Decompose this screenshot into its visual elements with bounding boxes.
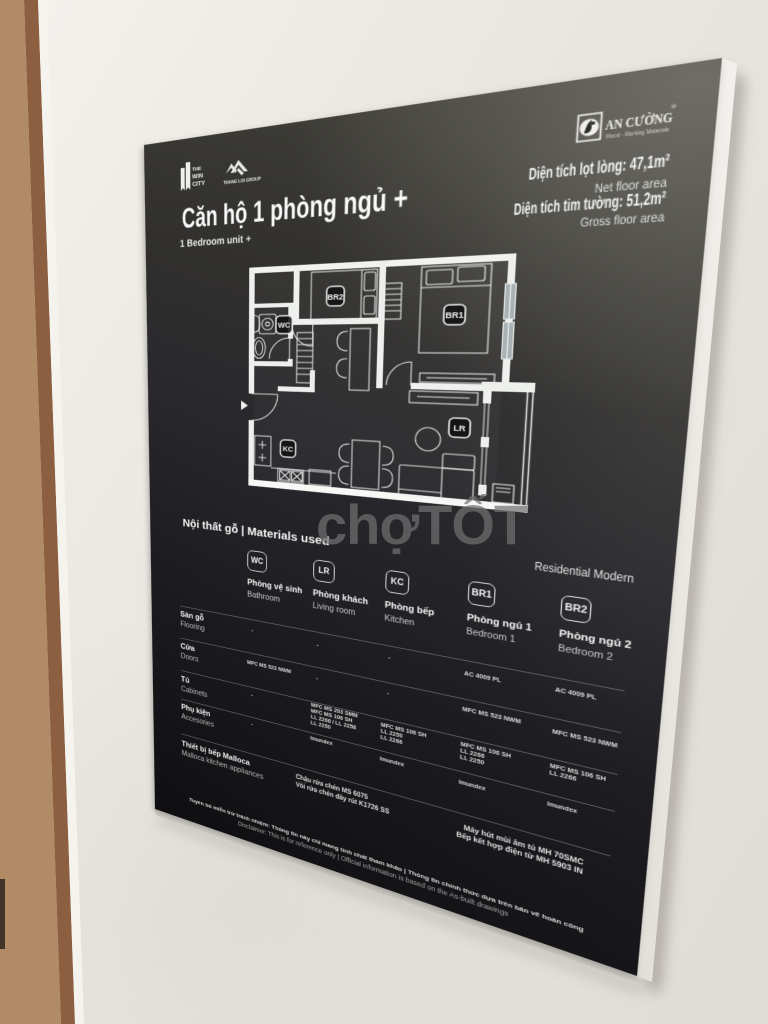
svg-text:THE: THE (192, 165, 201, 172)
svg-text:CITY: CITY (192, 180, 205, 188)
svg-text:BR2: BR2 (327, 294, 343, 303)
svg-text:THANG LOI GROUP: THANG LOI GROUP (224, 176, 262, 186)
svg-text:LR: LR (453, 425, 466, 434)
svg-text:®: ® (671, 103, 677, 111)
svg-text:KC: KC (283, 446, 294, 454)
svg-text:BR1: BR1 (445, 312, 464, 321)
svg-text:WC: WC (278, 322, 290, 330)
